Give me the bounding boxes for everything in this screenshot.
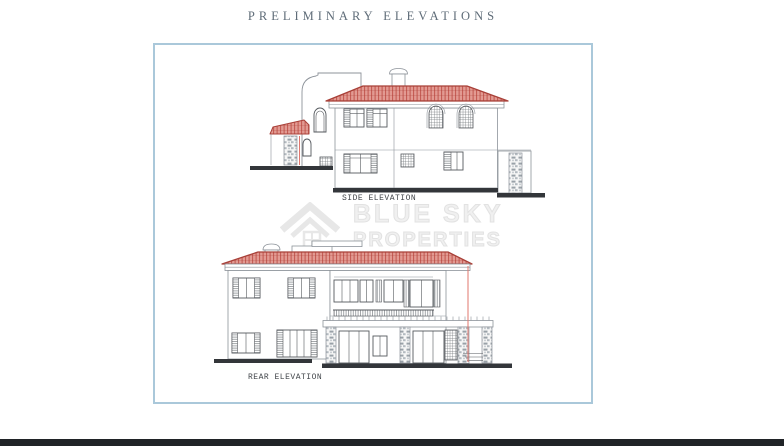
rear-elevation-label: REAR ELEVATION [248,373,322,382]
bottom-dark-bar [0,439,784,446]
watermark-text: BLUE SKY PROPERTIES [353,202,503,250]
drawing-sheet-page: PRELIMINARY ELEVATIONS BLUE SKY PROPERTI… [0,0,784,446]
side-elevation-label: SIDE ELEVATION [342,194,416,203]
watermark-line1: BLUE SKY [353,202,503,227]
house-logo-icon [280,202,344,250]
watermark-line2: PROPERTIES [353,230,503,250]
page-title: PRELIMINARY ELEVATIONS [153,9,593,24]
watermark: BLUE SKY PROPERTIES [280,202,503,250]
